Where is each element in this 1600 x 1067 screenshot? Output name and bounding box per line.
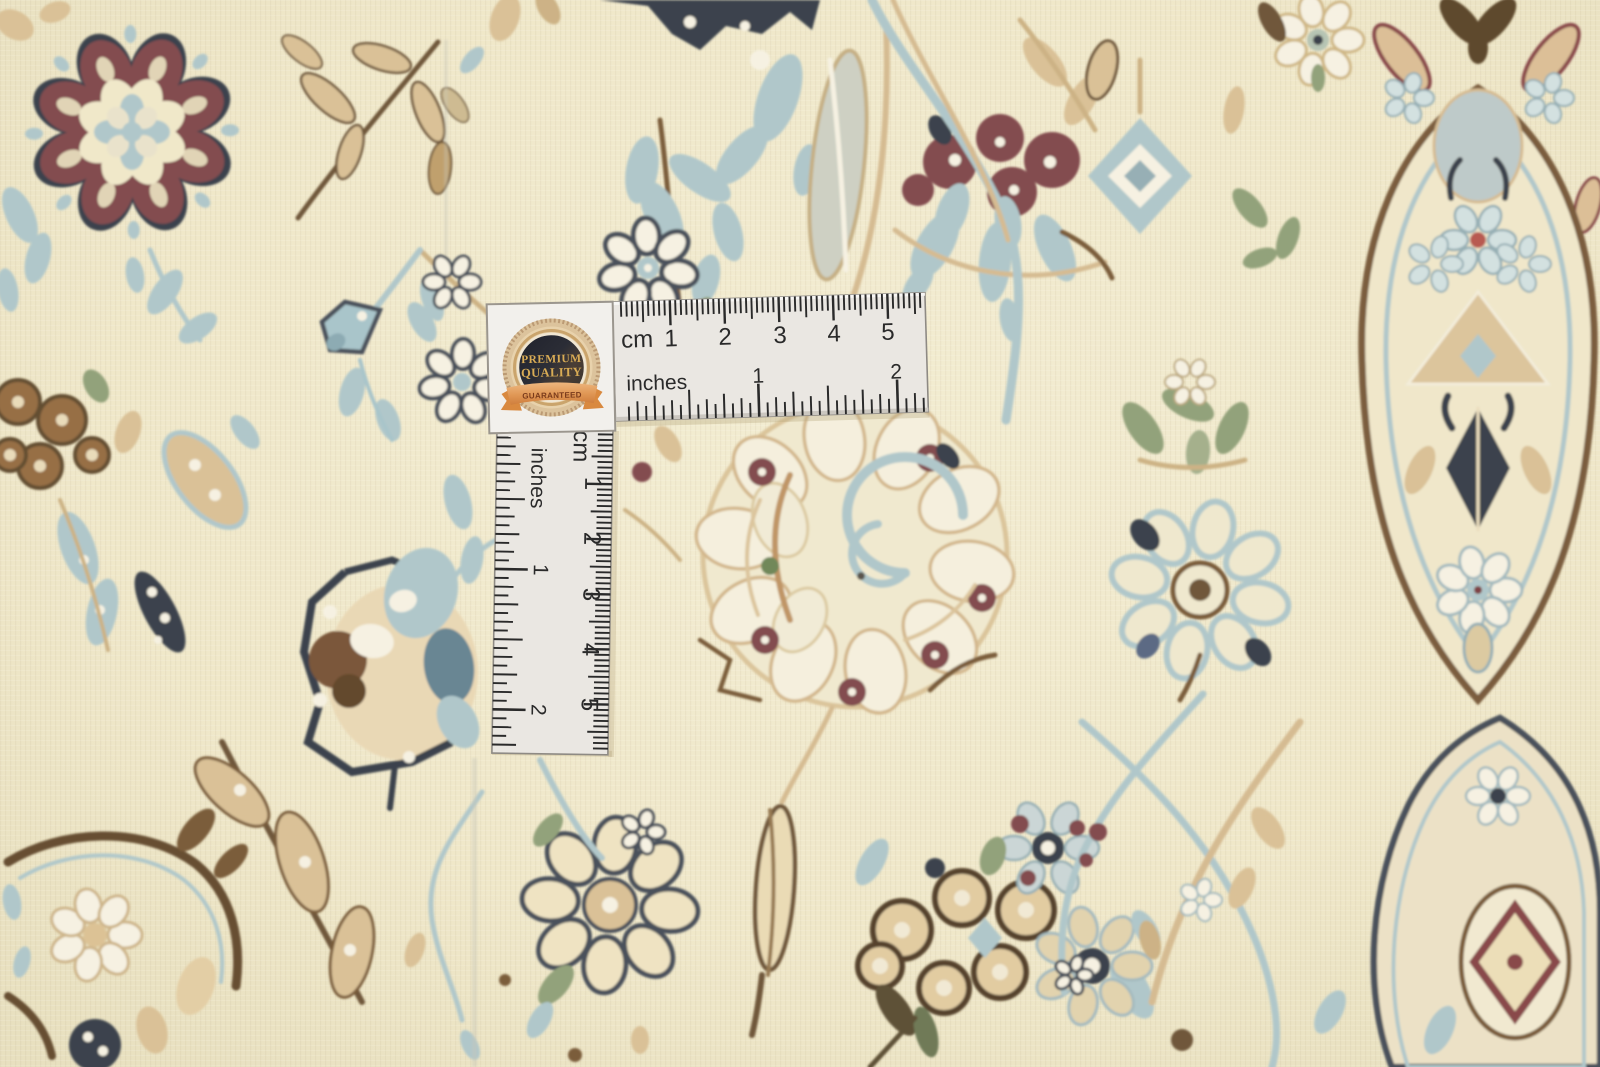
svg-text:1: 1 [752, 365, 764, 388]
svg-text:1: 1 [579, 477, 606, 491]
svg-text:3: 3 [773, 322, 787, 349]
svg-text:2: 2 [718, 323, 732, 350]
svg-text:inches: inches [626, 371, 687, 396]
svg-text:cm: cm [567, 430, 594, 462]
svg-text:cm: cm [621, 326, 654, 354]
svg-text:3: 3 [577, 588, 604, 602]
svg-text:QUALITY: QUALITY [521, 365, 582, 380]
svg-text:1: 1 [664, 325, 678, 352]
svg-text:2: 2 [526, 704, 549, 716]
svg-text:2: 2 [578, 532, 605, 546]
svg-text:4: 4 [576, 643, 603, 657]
svg-text:4: 4 [827, 320, 841, 347]
svg-text:GUARANTEED: GUARANTEED [522, 390, 582, 400]
svg-text:inches: inches [526, 448, 550, 509]
svg-text:2: 2 [890, 360, 902, 383]
svg-text:5: 5 [576, 698, 603, 712]
svg-text:1: 1 [529, 564, 552, 576]
svg-text:5: 5 [881, 319, 895, 346]
